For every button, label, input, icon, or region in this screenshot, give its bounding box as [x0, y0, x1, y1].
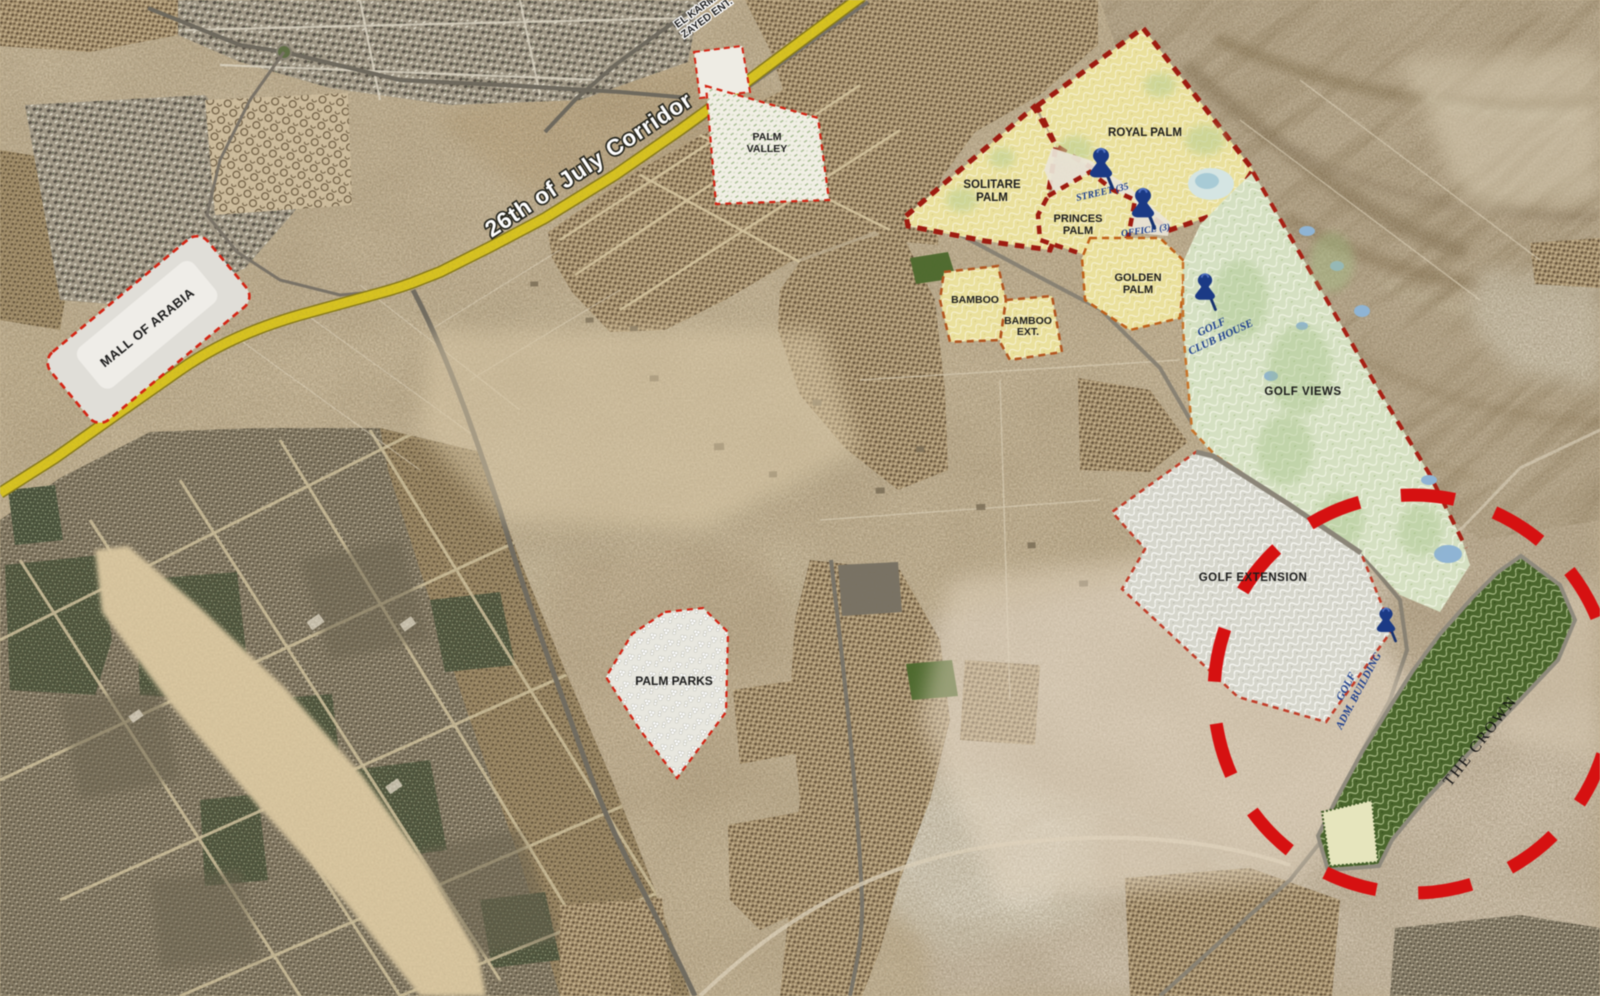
svg-text:GOLF EXTENSION: GOLF EXTENSION — [1199, 572, 1308, 584]
svg-text:BAMBOO: BAMBOO — [951, 294, 999, 306]
svg-text:PRINCES: PRINCES — [1054, 213, 1103, 225]
svg-text:PALM: PALM — [753, 131, 782, 143]
svg-text:ROYAL PALM: ROYAL PALM — [1108, 127, 1182, 139]
svg-text:PALM PARKS: PALM PARKS — [635, 674, 713, 688]
svg-text:EXT.: EXT. — [1017, 326, 1039, 338]
svg-text:PALM: PALM — [1063, 225, 1093, 237]
svg-text:PALM: PALM — [976, 192, 1008, 204]
svg-text:SOLITARE: SOLITARE — [963, 179, 1021, 191]
svg-text:PALM: PALM — [1123, 284, 1153, 296]
svg-text:GOLDEN: GOLDEN — [1114, 272, 1161, 284]
svg-text:GOLF VIEWS: GOLF VIEWS — [1264, 386, 1341, 398]
svg-text:VALLEY: VALLEY — [747, 143, 788, 155]
